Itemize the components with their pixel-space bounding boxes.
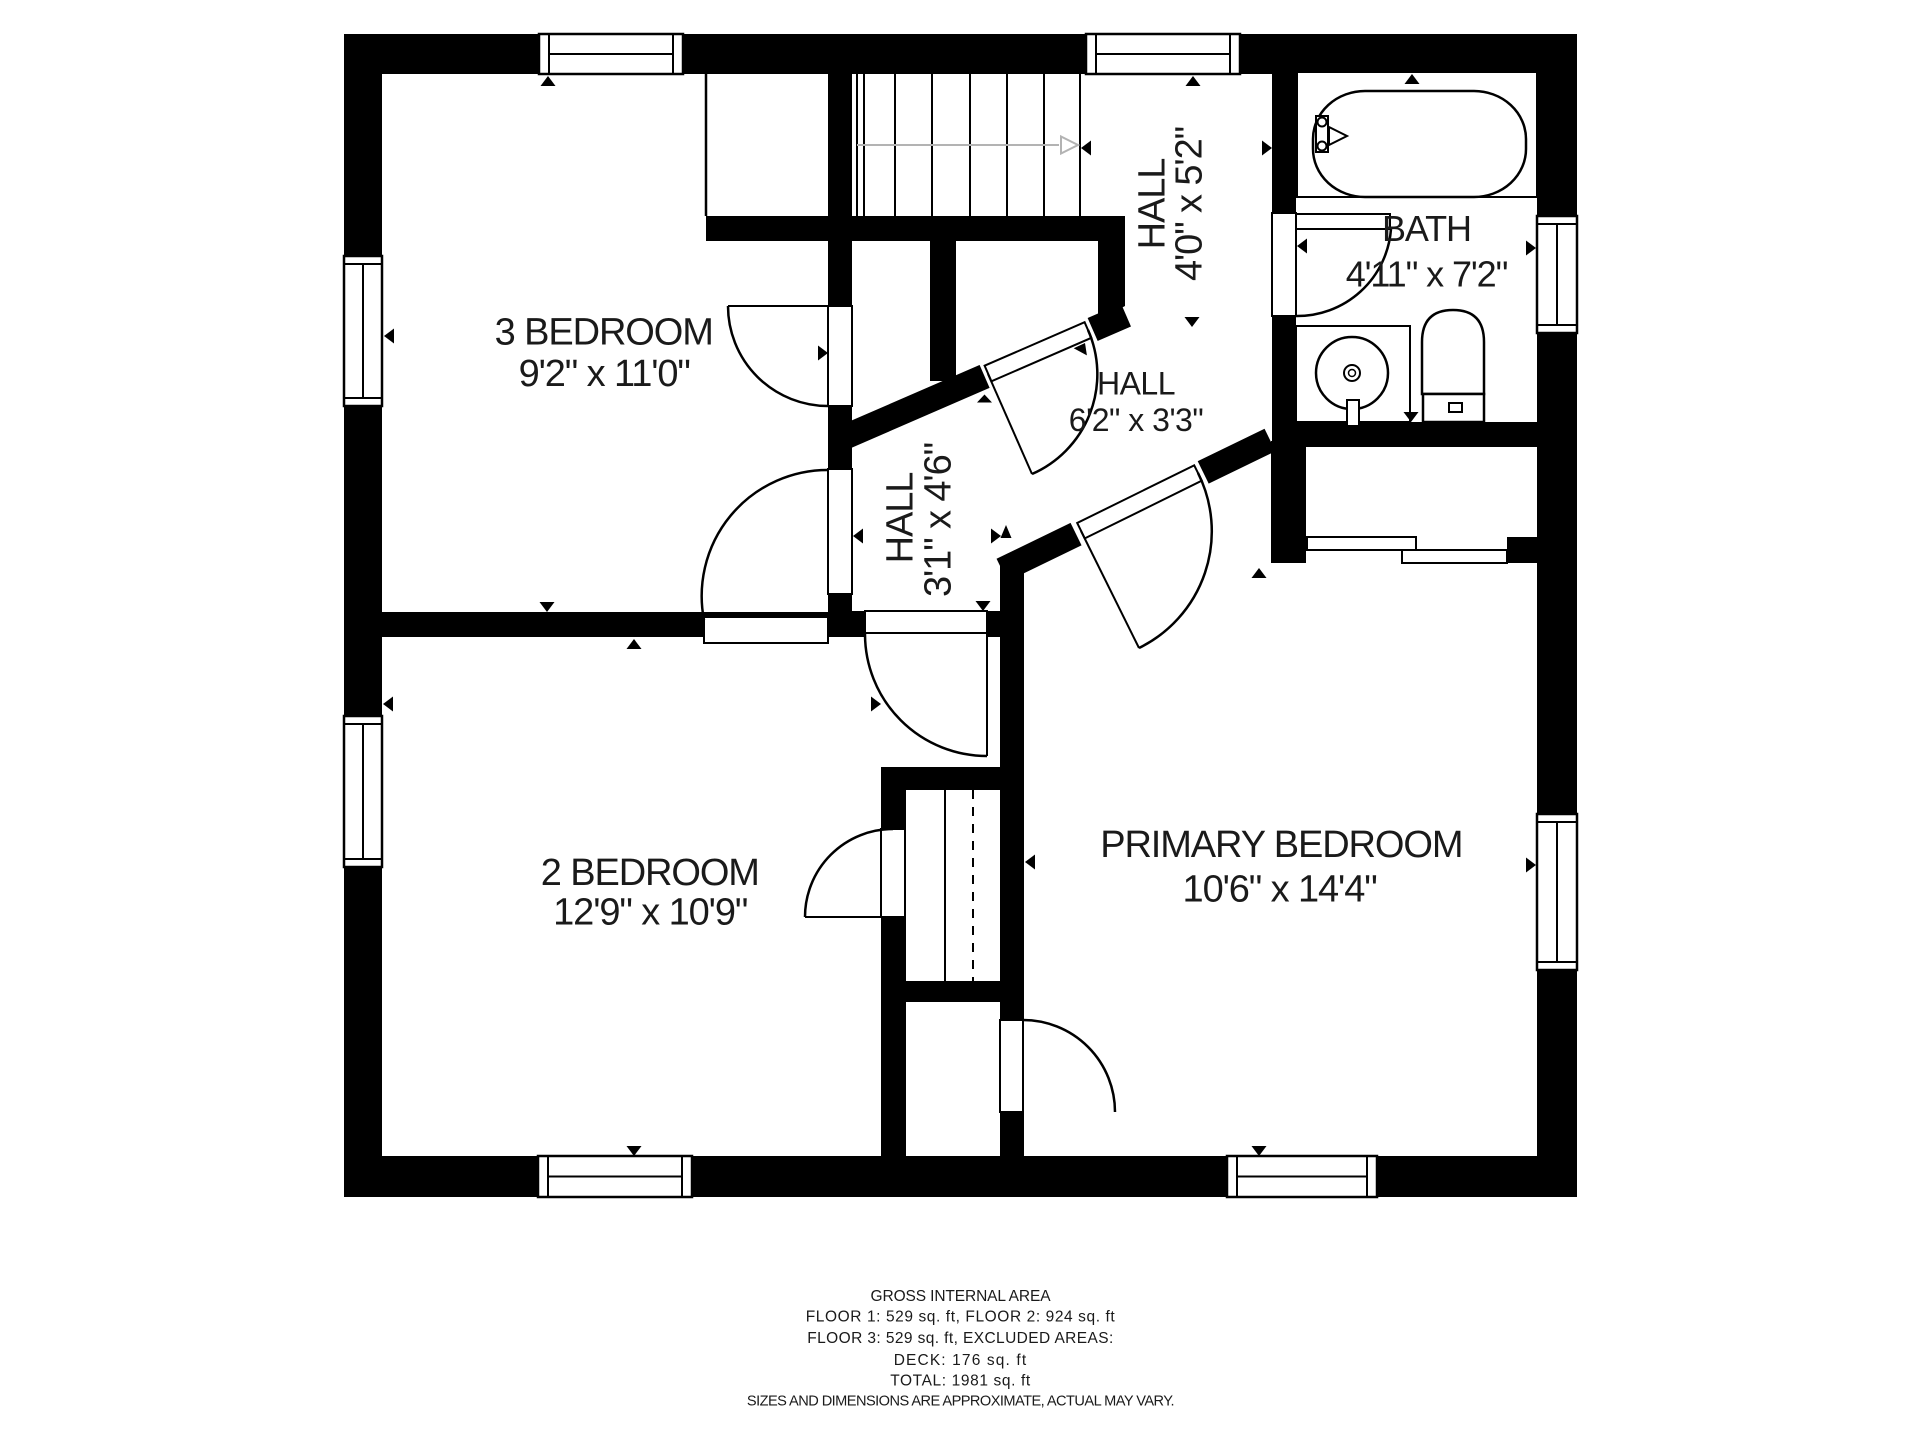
svg-text:PRIMARY BEDROOM: PRIMARY BEDROOM (1100, 824, 1462, 866)
svg-text:3'1" x 4'6": 3'1" x 4'6" (918, 443, 960, 597)
svg-text:BATH: BATH (1382, 208, 1471, 249)
svg-text:3 BEDROOM: 3 BEDROOM (495, 312, 713, 354)
svg-text:4'11" x 7'2": 4'11" x 7'2" (1346, 253, 1508, 294)
svg-text:HALL: HALL (880, 473, 922, 564)
svg-text:TOTAL: 1981 sq. ft: TOTAL: 1981 sq. ft (890, 1373, 1031, 1390)
svg-text:10'6" x 14'4": 10'6" x 14'4" (1183, 869, 1377, 911)
svg-text:9'2" x 11'0": 9'2" x 11'0" (519, 353, 690, 395)
svg-text:FLOOR 3: 529 sq. ft, EXCLUDED: FLOOR 3: 529 sq. ft, EXCLUDED AREAS: (807, 1330, 1113, 1347)
svg-text:6'2" x 3'3": 6'2" x 3'3" (1069, 402, 1203, 438)
svg-text:DECK: 176 sq. ft: DECK: 176 sq. ft (894, 1352, 1028, 1369)
svg-text:2 BEDROOM: 2 BEDROOM (541, 852, 759, 894)
svg-text:GROSS INTERNAL AREA: GROSS INTERNAL AREA (871, 1288, 1052, 1305)
svg-text:12'9" x 10'9": 12'9" x 10'9" (553, 892, 747, 934)
svg-text:HALL: HALL (1097, 365, 1175, 401)
svg-text:HALL: HALL (1132, 159, 1174, 250)
svg-text:SIZES AND DIMENSIONS ARE APPRO: SIZES AND DIMENSIONS ARE APPROXIMATE, AC… (747, 1394, 1174, 1410)
svg-text:4'0" x 5'2": 4'0" x 5'2" (1169, 127, 1211, 281)
svg-text:FLOOR 1: 529 sq. ft, FLOOR 2:: FLOOR 1: 529 sq. ft, FLOOR 2: 924 sq. ft (806, 1308, 1116, 1325)
